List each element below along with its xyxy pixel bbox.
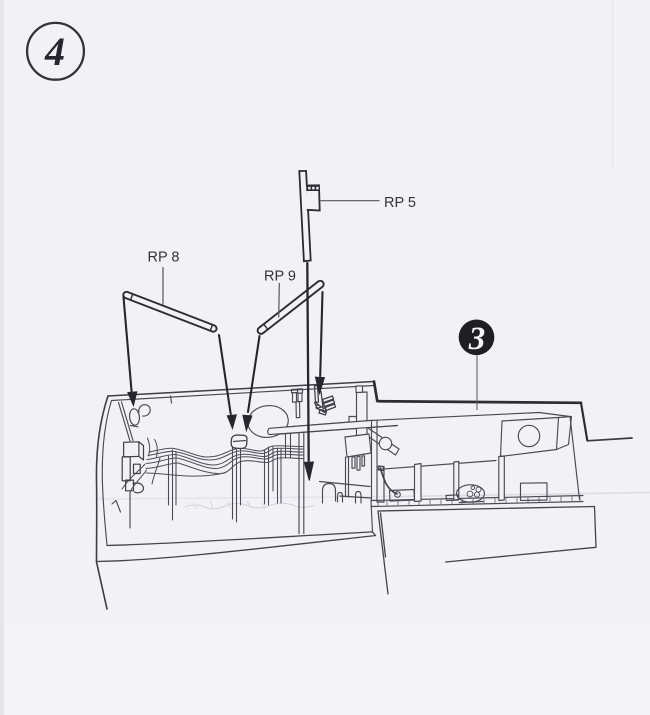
svg-text:RP 8: RP 8 — [148, 250, 180, 266]
svg-text:RP 9: RP 9 — [264, 269, 296, 285]
svg-text:RP 5: RP 5 — [384, 195, 416, 211]
svg-text:4: 4 — [44, 29, 65, 74]
svg-text:3: 3 — [468, 321, 486, 357]
